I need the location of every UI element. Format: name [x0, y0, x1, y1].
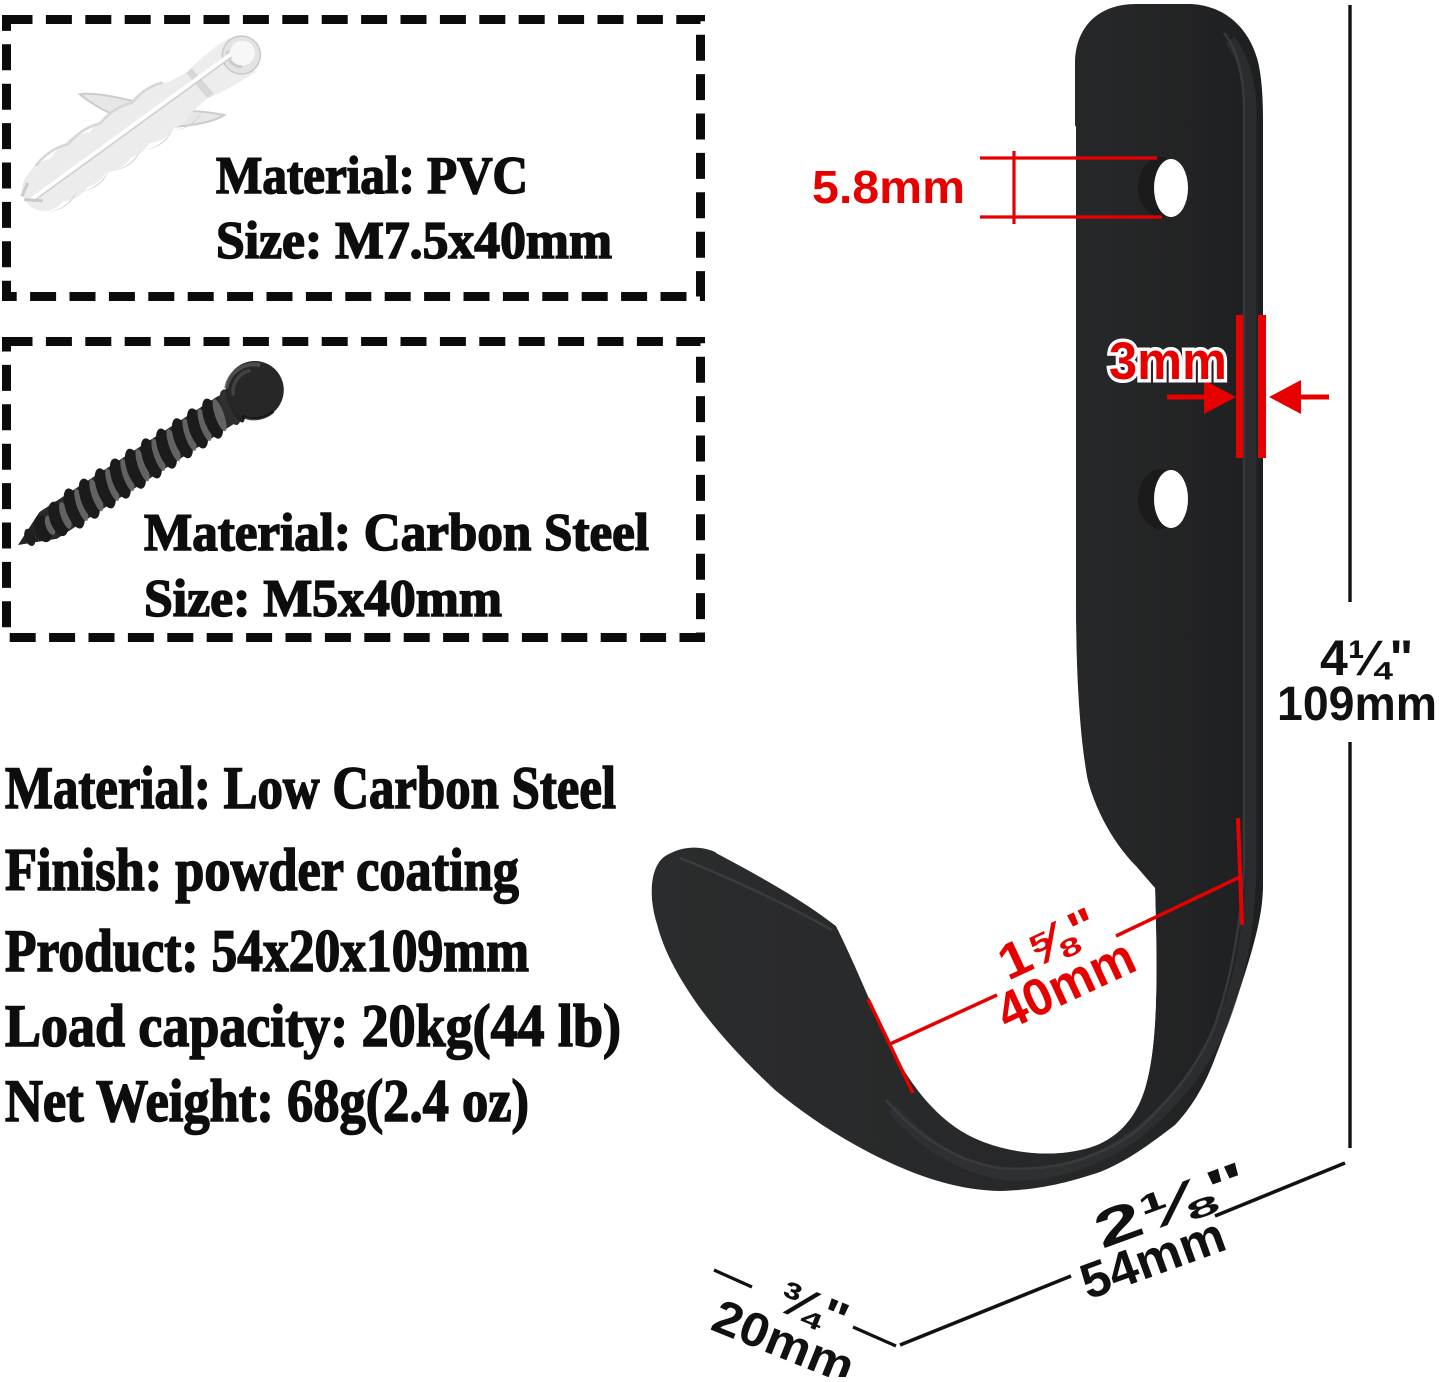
svg-text:109mm: 109mm — [1277, 678, 1437, 731]
svg-text:Finish: powder coating: Finish: powder coating — [5, 837, 519, 903]
svg-text:Net Weight: 68g(2.4 oz): Net Weight: 68g(2.4 oz) — [5, 1068, 529, 1134]
svg-text:Product: 54x20x109mm: Product: 54x20x109mm — [5, 918, 529, 984]
svg-text:Load capacity: 20kg(44 lb): Load capacity: 20kg(44 lb) — [5, 993, 621, 1059]
svg-text:Size: M5x40mm: Size: M5x40mm — [144, 570, 502, 628]
svg-text:5.8mm: 5.8mm — [812, 161, 965, 213]
svg-text:Material: PVC: Material: PVC — [216, 147, 528, 205]
svg-text:Material: Low Carbon Steel: Material: Low Carbon Steel — [5, 755, 616, 821]
svg-text:3mm: 3mm — [1109, 332, 1227, 391]
svg-text:Size: M7.5x40mm: Size: M7.5x40mm — [216, 212, 612, 270]
svg-text:Material: Carbon Steel: Material: Carbon Steel — [144, 504, 649, 562]
